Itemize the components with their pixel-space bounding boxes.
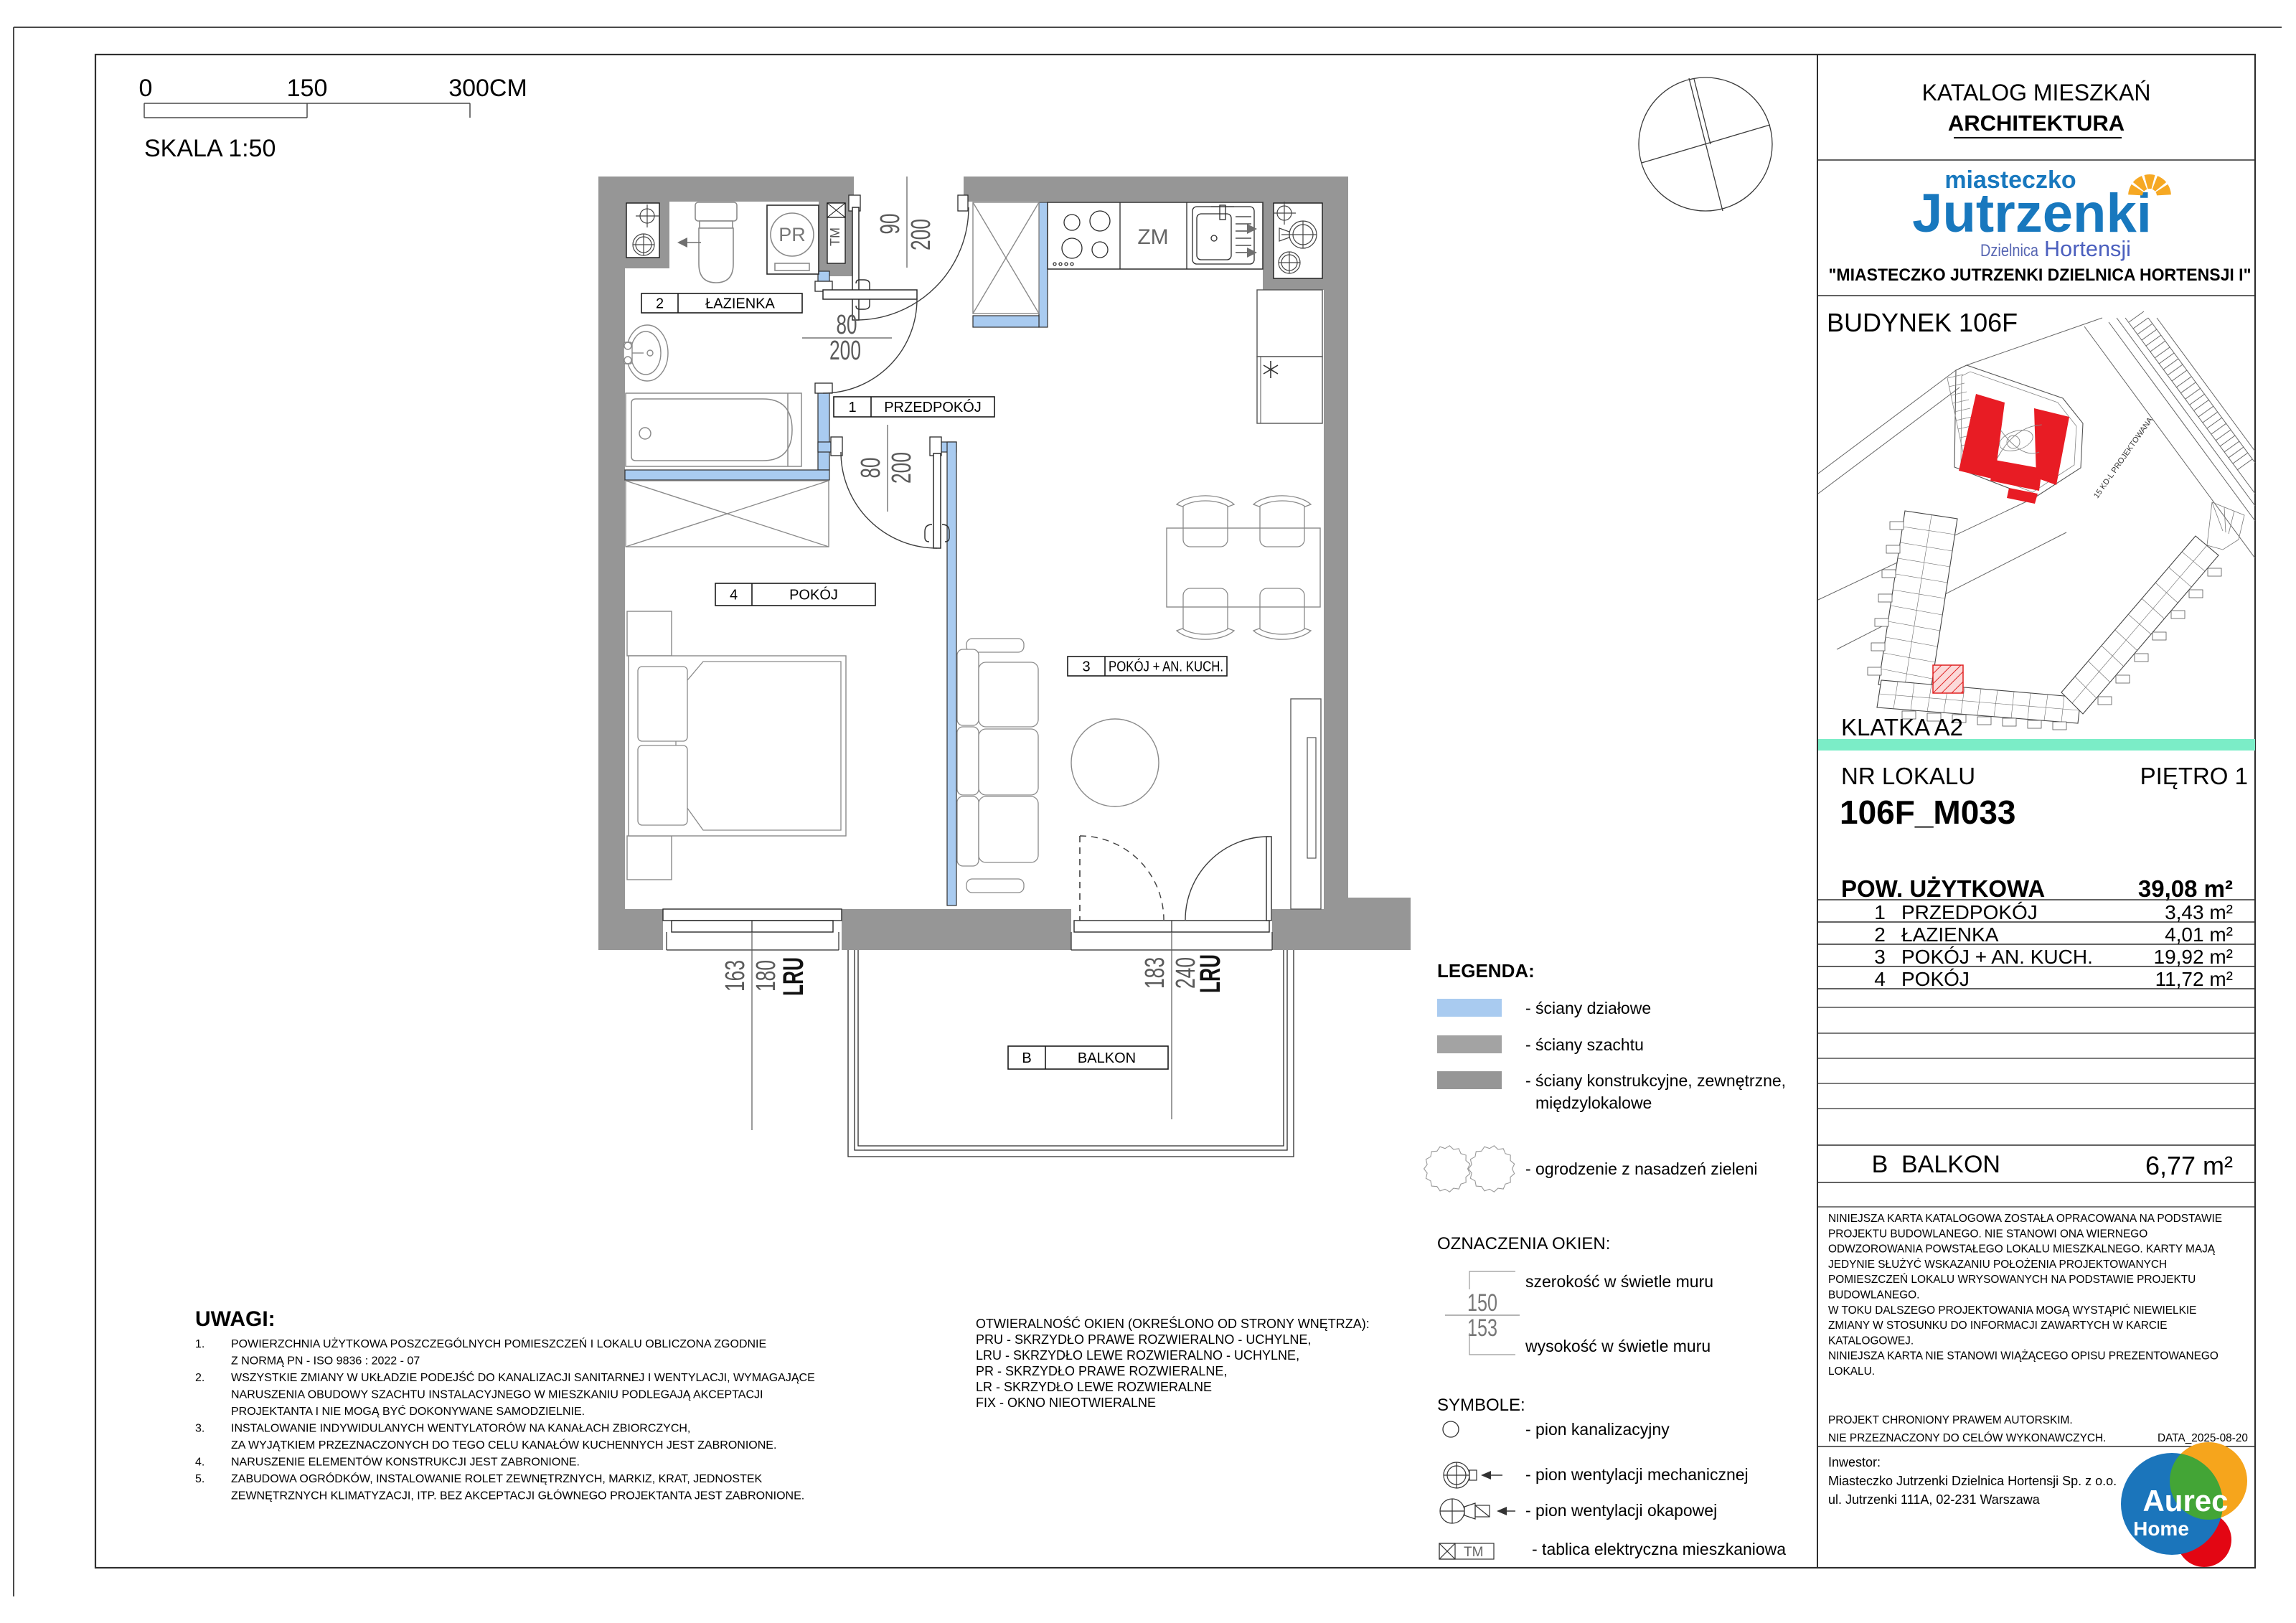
- svg-text:POKÓJ: POKÓJ: [789, 587, 838, 603]
- svg-text:200: 200: [887, 452, 917, 484]
- svg-text:Z NORMĄ PN - ISO 9836 : 2022 -: Z NORMĄ PN - ISO 9836 : 2022 - 07: [231, 1355, 420, 1368]
- svg-text:INSTALOWANIE INDYWIDULANYCH WE: INSTALOWANIE INDYWIDULANYCH WENTYLATORÓW…: [231, 1421, 690, 1435]
- svg-text:- ściany działowe: - ściany działowe: [1525, 999, 1651, 1017]
- svg-text:PR - SKRZYDŁO PRAWE ROZWIERALN: PR - SKRZYDŁO PRAWE ROZWIERALNE,: [976, 1364, 1227, 1378]
- svg-text:LRU: LRU: [778, 957, 809, 996]
- svg-text:JEDYNIE SŁUŻYĆ WSKAZANIU POŁOŻ: JEDYNIE SŁUŻYĆ WSKAZANIU POŁOŻENIA PROJE…: [1828, 1258, 2167, 1271]
- svg-text:ODWZOROWANIA POWSTAŁEGO LOKALU: ODWZOROWANIA POWSTAŁEGO LOKALU MIESZKALN…: [1828, 1243, 2216, 1256]
- svg-text:PRZEDPOKÓJ: PRZEDPOKÓJ: [1901, 901, 2038, 923]
- svg-text:11,72 m²: 11,72 m²: [2155, 968, 2233, 990]
- svg-text:PRU - SKRZYDŁO PRAWE ROZWIERAL: PRU - SKRZYDŁO PRAWE ROZWIERALNO - UCHYL…: [976, 1332, 1311, 1347]
- svg-text:2: 2: [1874, 923, 1886, 946]
- svg-text:106F_M033: 106F_M033: [1840, 794, 2016, 831]
- svg-text:1: 1: [848, 400, 856, 415]
- svg-text:6,77 m²: 6,77 m²: [2145, 1151, 2233, 1180]
- svg-text:SYMBOLE:: SYMBOLE:: [1437, 1396, 1525, 1415]
- svg-text:POW. UŻYTKOWA: POW. UŻYTKOWA: [1841, 875, 2045, 902]
- svg-text:- pion wentylacji mechanicznej: - pion wentylacji mechanicznej: [1525, 1465, 1749, 1484]
- svg-text:"MIASTECZKO JUTRZENKI DZIELNIC: "MIASTECZKO JUTRZENKI DZIELNICA HORTENSJ…: [1829, 265, 2252, 285]
- svg-text:1.: 1.: [195, 1338, 204, 1350]
- svg-text:BALKON: BALKON: [1901, 1151, 2000, 1178]
- svg-text:19,92 m²: 19,92 m²: [2154, 946, 2234, 968]
- svg-text:ZABUDOWA OGRÓDKÓW, INSTALOWANI: ZABUDOWA OGRÓDKÓW, INSTALOWANIE ROLET ZE…: [231, 1472, 763, 1485]
- svg-text:KATALOGOWEJ.: KATALOGOWEJ.: [1828, 1335, 1914, 1347]
- svg-text:FIX - OKNO NIEOTWIERALNE: FIX - OKNO NIEOTWIERALNE: [976, 1396, 1156, 1410]
- svg-text:- ściany konstrukcyjne, zewnęt: - ściany konstrukcyjne, zewnętrzne,: [1525, 1071, 1786, 1090]
- svg-text:3: 3: [1082, 659, 1090, 675]
- svg-text:4: 4: [1874, 968, 1886, 990]
- svg-text:ZMIANY W STOSUNKU DO INFORMACJ: ZMIANY W STOSUNKU DO INFORMACJI ZAWARTYC…: [1828, 1319, 2168, 1332]
- svg-text:ZA WYJĄTKIEM PRZEZNACZONYCH DO: ZA WYJĄTKIEM PRZEZNACZONYCH DO TEGO CELU…: [231, 1438, 776, 1452]
- svg-text:4: 4: [730, 588, 738, 603]
- svg-text:0: 0: [139, 75, 153, 102]
- svg-text:POKÓJ + AN. KUCH.: POKÓJ + AN. KUCH.: [1901, 946, 2093, 968]
- svg-text:200: 200: [829, 336, 861, 366]
- svg-text:LRU: LRU: [1195, 954, 1226, 993]
- svg-text:ARCHITEKTURA: ARCHITEKTURA: [1948, 110, 2125, 136]
- svg-text:PR: PR: [778, 224, 806, 245]
- svg-text:- tablica elektryczna mieszkan: - tablica elektryczna mieszkaniowa: [1532, 1540, 1786, 1558]
- svg-text:- ogrodzenie z nasadzeń zielen: - ogrodzenie z nasadzeń zieleni: [1525, 1159, 1757, 1178]
- svg-text:POKÓJ: POKÓJ: [1901, 968, 1970, 990]
- svg-text:ŁAZIENKA: ŁAZIENKA: [1901, 923, 1999, 946]
- svg-text:153: 153: [1467, 1314, 1497, 1342]
- svg-text:ZEWNĘTRZNYCH KLIMATYZACJI, IT: ZEWNĘTRZNYCH KLIMATYZACJI, ITP. BEZ AKCE…: [231, 1489, 804, 1502]
- svg-text:BUDYNEK 106F: BUDYNEK 106F: [1827, 308, 2018, 337]
- svg-text:Inwestor:: Inwestor:: [1828, 1455, 1881, 1469]
- svg-text:1: 1: [1874, 901, 1886, 923]
- svg-text:2: 2: [656, 296, 664, 312]
- svg-text:200: 200: [906, 219, 936, 250]
- svg-text:- pion kanalizacyjny: - pion kanalizacyjny: [1525, 1420, 1670, 1439]
- svg-text:PROJEKTANTA I NIE MOGĄ BYĆ DOK: PROJEKTANTA I NIE MOGĄ BYĆ DOKONYWANE SA…: [231, 1404, 585, 1418]
- svg-text:- pion wentylacji okapowej: - pion wentylacji okapowej: [1525, 1501, 1717, 1520]
- svg-text:4.: 4.: [195, 1457, 204, 1469]
- svg-text:POMIESZCZEŃ LOKALU WRYSOWANYCH: POMIESZCZEŃ LOKALU WRYSOWANYCH NA PODSTA…: [1828, 1274, 2196, 1286]
- svg-text:UWAGI:: UWAGI:: [195, 1307, 276, 1331]
- svg-text:LOKALU.: LOKALU.: [1828, 1365, 1875, 1378]
- svg-text:NARUSZENIE ELEMENTÓW KONSTRUKC: NARUSZENIE ELEMENTÓW KONSTRUKCJI JEST ZA…: [231, 1455, 580, 1469]
- svg-text:ZM: ZM: [1137, 225, 1168, 249]
- svg-text:PIĘTRO 1: PIĘTRO 1: [2140, 763, 2248, 789]
- svg-text:Aurec: Aurec: [2142, 1484, 2228, 1518]
- svg-text:150: 150: [287, 75, 328, 102]
- svg-text:PROJEKT CHRONIONY PRAWEM AUTOR: PROJEKT CHRONIONY PRAWEM AUTORSKIM.: [1828, 1414, 2073, 1426]
- svg-text:OTWIERALNOŚĆ OKIEN (OKREŚLONO: OTWIERALNOŚĆ OKIEN (OKREŚLONO OD STRONY …: [976, 1316, 1370, 1331]
- svg-text:NARUSZENIA OBUDOWY SZACHTU INS: NARUSZENIA OBUDOWY SZACHTU INSTALACYJNEG…: [231, 1389, 763, 1401]
- svg-text:NR LOKALU: NR LOKALU: [1841, 763, 1975, 789]
- svg-text:szerokość w świetle muru: szerokość w świetle muru: [1525, 1272, 1713, 1291]
- svg-text:NINIEJSZA KARTA KATALOGOWA ZOS: NINIEJSZA KARTA KATALOGOWA ZOSTAŁA OPRAC…: [1828, 1213, 2222, 1225]
- svg-text:Home: Home: [2133, 1518, 2189, 1540]
- svg-text:B: B: [1872, 1151, 1888, 1178]
- svg-text:B: B: [1022, 1050, 1031, 1066]
- svg-text:PRZEDPOKÓJ: PRZEDPOKÓJ: [884, 399, 982, 415]
- svg-text:300CM: 300CM: [448, 75, 527, 102]
- svg-text:NINIEJSZA KARTA NIE STANOWI WI: NINIEJSZA KARTA NIE STANOWI WIĄŻĄCEGO OP…: [1828, 1350, 2219, 1363]
- svg-text:TM: TM: [828, 227, 842, 246]
- svg-text:150: 150: [1467, 1289, 1497, 1317]
- svg-text:WSZYSTKIE ZMIANY W UKŁADZIE PO: WSZYSTKIE ZMIANY W UKŁADZIE PODEJŚĆ DO K…: [231, 1370, 815, 1384]
- svg-text:KLATKA A2: KLATKA A2: [1841, 714, 1963, 740]
- svg-text:KATALOG MIESZKAŃ: KATALOG MIESZKAŃ: [1922, 80, 2151, 105]
- svg-text:Miasteczko Jutrzenki Dzielnica: Miasteczko Jutrzenki Dzielnica Hortensji…: [1828, 1474, 2117, 1488]
- svg-text:międzylokalowe: międzylokalowe: [1535, 1093, 1652, 1112]
- svg-text:LRU - SKRZYDŁO LEWE ROZWIERALN: LRU - SKRZYDŁO LEWE ROZWIERALNO - UCHYLN…: [976, 1348, 1299, 1363]
- svg-text:TM: TM: [1464, 1545, 1483, 1560]
- svg-text:2.: 2.: [195, 1372, 204, 1384]
- svg-text:Jutrzenki: Jutrzenki: [1912, 183, 2152, 244]
- svg-text:3.: 3.: [195, 1423, 204, 1435]
- svg-text:SKALA 1:50: SKALA 1:50: [144, 135, 276, 162]
- svg-text:3: 3: [1874, 946, 1886, 968]
- svg-text:OZNACZENIA OKIEN:: OZNACZENIA OKIEN:: [1437, 1234, 1610, 1253]
- svg-text:LEGENDA:: LEGENDA:: [1437, 960, 1535, 982]
- svg-text:Dzielnica: Dzielnica: [1980, 241, 2039, 260]
- svg-text:90: 90: [875, 214, 905, 235]
- svg-text:LR - SKRZYDŁO LEWE ROZWIERALNE: LR - SKRZYDŁO LEWE ROZWIERALNE: [976, 1380, 1212, 1394]
- svg-text:4,01 m²: 4,01 m²: [2165, 923, 2233, 946]
- svg-text:wysokość w świetle muru: wysokość w świetle muru: [1525, 1337, 1711, 1355]
- svg-text:ul. Jutrzenki 111A, 02-231 War: ul. Jutrzenki 111A, 02-231 Warszawa: [1828, 1492, 2041, 1507]
- svg-text:PROJEKTU BUDOWLANEGO. NIE STAN: PROJEKTU BUDOWLANEGO. NIE STANOWI ONA WI…: [1828, 1228, 2147, 1240]
- svg-text:3,43 m²: 3,43 m²: [2165, 901, 2233, 923]
- svg-text:39,08 m²: 39,08 m²: [2138, 875, 2233, 902]
- svg-text:POKÓJ + AN. KUCH.: POKÓJ + AN. KUCH.: [1109, 659, 1223, 675]
- svg-text:DATA_2025-08-20: DATA_2025-08-20: [2158, 1432, 2248, 1444]
- svg-text:80: 80: [856, 458, 886, 479]
- svg-text:180: 180: [751, 960, 781, 992]
- svg-text:163: 163: [720, 960, 751, 992]
- svg-text:183: 183: [1140, 957, 1170, 989]
- svg-text:Hortensji: Hortensji: [2044, 236, 2131, 261]
- svg-text:NIE PRZEZNACZONY DO CELÓW WYKO: NIE PRZEZNACZONY DO CELÓW WYKONAWCZYCH.: [1828, 1432, 2106, 1444]
- svg-text:- ściany szachtu: - ściany szachtu: [1525, 1035, 1644, 1054]
- svg-text:POWIERZCHNIA UŻYTKOWA POSZCZEG: POWIERZCHNIA UŻYTKOWA POSZCZEGÓLNYCH POM…: [231, 1337, 766, 1350]
- svg-text:BUDOWLANEGO.: BUDOWLANEGO.: [1828, 1289, 1919, 1302]
- svg-text:BALKON: BALKON: [1078, 1050, 1136, 1066]
- svg-text:W TOKU DALSZEGO PROJEKTOWANIA: W TOKU DALSZEGO PROJEKTOWANIA MOGĄ WYSTĄ…: [1828, 1304, 2196, 1317]
- svg-text:ŁAZIENKA: ŁAZIENKA: [705, 296, 775, 312]
- svg-text:5.: 5.: [195, 1473, 204, 1485]
